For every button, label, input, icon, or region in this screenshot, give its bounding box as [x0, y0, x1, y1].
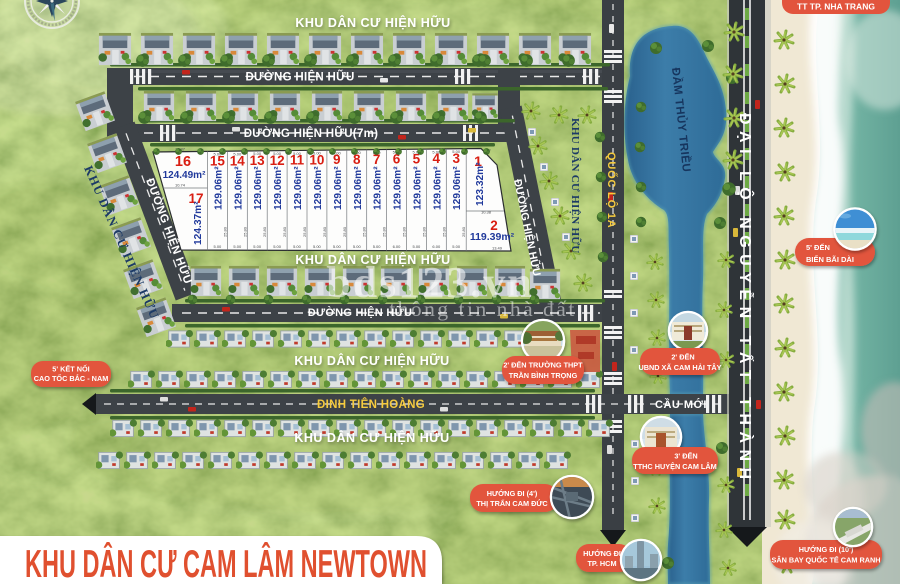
- svg-text:thông tin nhà đất: thông tin nhà đất: [389, 297, 577, 321]
- svg-text:25.80: 25.80: [362, 226, 367, 237]
- svg-text:5.00: 5.00: [233, 244, 242, 249]
- svg-text:25.80: 25.80: [322, 226, 327, 237]
- svg-text:ĐẠI LỘ NGUYỄN TẤT THÀNH: ĐẠI LỘ NGUYỄN TẤT THÀNH: [736, 113, 755, 486]
- svg-text:25.80: 25.80: [441, 226, 446, 237]
- svg-text:123.32m²: 123.32m²: [475, 162, 486, 206]
- svg-text:25.80: 25.80: [262, 226, 267, 237]
- svg-text:2' ĐẾN TRƯỜNG THPT: 2' ĐẾN TRƯỜNG THPT: [503, 360, 583, 370]
- svg-text:5.00: 5.00: [293, 151, 302, 156]
- svg-text:2' ĐẾN: 2' ĐẾN: [671, 352, 694, 362]
- svg-text:TRẦN BÌNH TRỌNG: TRẦN BÌNH TRỌNG: [509, 370, 578, 380]
- svg-text:KHU DÂN CƯ HIỆN HỮU: KHU DÂN CƯ HIỆN HỮU: [569, 118, 582, 254]
- svg-text:3' ĐẾN: 3' ĐẾN: [674, 451, 697, 461]
- svg-text:6.00: 6.00: [393, 244, 402, 249]
- svg-text:BIỂN BÃI DÀI: BIỂN BÃI DÀI: [806, 255, 854, 264]
- svg-text:16: 16: [175, 154, 191, 170]
- svg-text:10.74: 10.74: [175, 183, 186, 188]
- svg-text:5' ĐẾN: 5' ĐẾN: [806, 242, 830, 252]
- svg-text:ĐƯỜNG HIỆN HỮU: ĐƯỜNG HIỆN HỮU: [245, 71, 354, 84]
- svg-text:25.80: 25.80: [302, 226, 307, 237]
- svg-text:ĐINH TIÊN HOÀNG: ĐINH TIÊN HOÀNG: [317, 398, 425, 411]
- svg-text:129.06m²: 129.06m²: [293, 166, 304, 210]
- svg-text:5' KẾT NỐI: 5' KẾT NỐI: [52, 364, 89, 374]
- svg-text:5.00: 5.00: [452, 149, 461, 154]
- svg-text:129.06m²: 129.06m²: [253, 166, 264, 210]
- svg-text:129.06m²: 129.06m²: [333, 166, 344, 210]
- svg-text:25.80: 25.80: [421, 226, 426, 237]
- svg-text:CẦU MỚI: CẦU MỚI: [655, 398, 707, 411]
- svg-text:KHU DÂN CƯ CAM LÂM NEWTOWN: KHU DÂN CƯ CAM LÂM NEWTOWN: [25, 542, 427, 584]
- svg-text:TT TP. NHA TRANG: TT TP. NHA TRANG: [797, 2, 875, 12]
- svg-text:25.80: 25.80: [402, 226, 407, 237]
- svg-text:ĐƯỜNG HIỆN HỮU(7m): ĐƯỜNG HIỆN HỮU(7m): [244, 127, 379, 140]
- svg-text:129.06m²: 129.06m²: [373, 166, 384, 210]
- svg-text:129.06m²: 129.06m²: [412, 166, 423, 210]
- svg-text:25.80: 25.80: [242, 226, 247, 237]
- svg-text:5.00: 5.00: [333, 244, 342, 249]
- svg-text:129.06m²: 129.06m²: [273, 166, 284, 210]
- svg-text:5.00: 5.00: [413, 244, 422, 249]
- svg-text:TTHC HUYỆN CAM LÂM: TTHC HUYỆN CAM LÂM: [633, 462, 717, 471]
- svg-text:HƯỚNG ĐI: HƯỚNG ĐI: [583, 549, 621, 558]
- svg-text:10.38: 10.38: [481, 210, 492, 215]
- svg-text:TP. HCM: TP. HCM: [587, 559, 616, 568]
- svg-text:129.06m²: 129.06m²: [353, 166, 364, 210]
- svg-text:25.80: 25.80: [222, 226, 227, 237]
- svg-text:119.39m²: 119.39m²: [470, 231, 515, 243]
- svg-text:SÂN BAY QUỐC TẾ CAM RANH: SÂN BAY QUỐC TẾ CAM RANH: [771, 555, 880, 565]
- svg-text:129.06m²: 129.06m²: [432, 166, 443, 210]
- svg-text:129.06m²: 129.06m²: [313, 166, 324, 210]
- svg-text:5.00: 5.00: [313, 244, 322, 249]
- svg-text:5.00: 5.00: [293, 244, 302, 249]
- svg-text:13.49: 13.49: [492, 246, 503, 251]
- svg-text:CAO TỐC BẮC - NAM: CAO TỐC BẮC - NAM: [34, 373, 109, 383]
- svg-text:5.00: 5.00: [452, 244, 461, 249]
- svg-text:5.00: 5.00: [253, 244, 262, 249]
- svg-text:129.06m²: 129.06m²: [393, 166, 404, 210]
- svg-text:124.49m²: 124.49m²: [163, 170, 206, 181]
- svg-text:5.00: 5.00: [353, 244, 362, 249]
- svg-text:25.80: 25.80: [461, 226, 466, 237]
- svg-text:5.00: 5.00: [253, 151, 262, 156]
- svg-text:KHU DÂN CƯ HIỆN HỮU: KHU DÂN CƯ HIỆN HỮU: [295, 15, 450, 30]
- svg-text:KHU DÂN CƯ HIỆN HỮU: KHU DÂN CƯ HIỆN HỮU: [294, 353, 449, 368]
- svg-text:QUỐC LỘ 1A: QUỐC LỘ 1A: [605, 152, 619, 228]
- svg-text:124.37m²: 124.37m²: [193, 201, 204, 245]
- svg-text:129.06m²: 129.06m²: [233, 166, 244, 210]
- svg-text:THỊ TRẤN CAM ĐỨC: THỊ TRẤN CAM ĐỨC: [476, 498, 548, 508]
- svg-text:129.06m²: 129.06m²: [213, 166, 224, 210]
- svg-text:HƯỚNG ĐI (4'): HƯỚNG ĐI (4'): [487, 489, 538, 498]
- svg-text:6.00: 6.00: [432, 244, 441, 249]
- svg-text:5.00: 5.00: [273, 244, 282, 249]
- svg-text:UBND XÃ CAM HẢI TÂY: UBND XÃ CAM HẢI TÂY: [638, 363, 721, 372]
- svg-text:25.80: 25.80: [382, 226, 387, 237]
- svg-text:5.00: 5.00: [233, 151, 242, 156]
- svg-text:5.00: 5.00: [313, 151, 322, 156]
- svg-text:KHU DÂN CƯ HIỆN HỮU: KHU DÂN CƯ HIỆN HỮU: [294, 430, 449, 445]
- svg-text:5.00: 5.00: [373, 244, 382, 249]
- svg-text:HƯỚNG ĐI (10'): HƯỚNG ĐI (10'): [799, 545, 854, 554]
- svg-text:25.80: 25.80: [282, 226, 287, 237]
- svg-text:129.06m²: 129.06m²: [452, 166, 463, 210]
- svg-text:5.00: 5.00: [273, 151, 282, 156]
- svg-text:25.80: 25.80: [342, 226, 347, 237]
- svg-text:5.00: 5.00: [214, 244, 223, 249]
